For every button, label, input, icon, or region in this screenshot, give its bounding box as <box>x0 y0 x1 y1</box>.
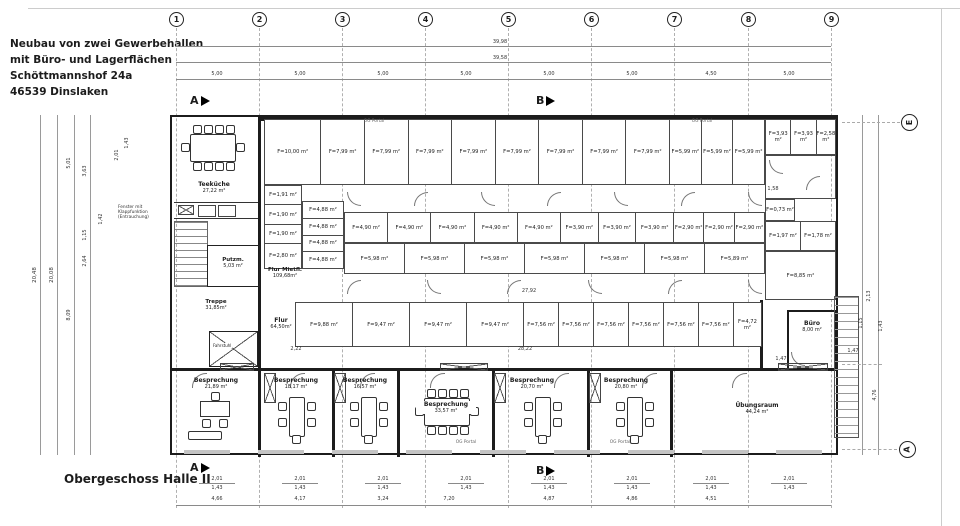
storage-unit: F=7,99 m² <box>451 119 496 185</box>
storage-row-lower: F=9,88 m²F=9,47 m²F=9,47 m²F=9,47 m²F=7,… <box>295 302 762 347</box>
chair-icon <box>438 389 447 398</box>
dim-label: 4,76 <box>872 382 878 408</box>
dim-label: 4,17 <box>289 496 311 502</box>
storage-row-mid-lower: F=5,98 m²F=5,98 m²F=5,98 m²F=5,98 m²F=5,… <box>344 243 765 274</box>
dim-label: 1,43 <box>878 313 884 339</box>
grid-bubble: 5 <box>501 12 516 27</box>
dimension-pair: 2,011,43 <box>771 476 807 491</box>
dimension-pair: 2,011,43 <box>448 476 484 491</box>
dim-label: 4,86 <box>621 496 643 502</box>
storage-unit: F=7,56 m² <box>558 302 594 347</box>
dim-line-bottom <box>176 505 831 506</box>
storage-unit: F=9,47 m² <box>409 302 467 347</box>
chair-icon <box>645 418 654 427</box>
table-icon <box>190 134 236 162</box>
chair-icon <box>616 418 625 427</box>
storage-unit: F=7,99 m² <box>320 119 365 185</box>
chair-icon <box>211 392 220 401</box>
chair-icon <box>215 125 224 134</box>
door-arc-icon <box>547 192 561 206</box>
row-bubble-e: E <box>901 114 918 131</box>
chair-icon <box>427 426 436 435</box>
chair-icon <box>278 402 287 411</box>
storage-unit: F=5,98 m² <box>464 243 525 274</box>
dim-label: 1,15 <box>858 310 864 336</box>
section-marker-a-top: A <box>190 94 210 107</box>
storage-unit: F=4,88 m² <box>302 235 344 253</box>
dim-tick-line <box>282 483 318 484</box>
wall <box>670 370 673 457</box>
storage-unit: F=7,56 m² <box>663 302 699 347</box>
door-arc-icon <box>347 192 361 206</box>
grid-bubble: 1 <box>169 12 184 27</box>
storage-unit: F=5,99 m² <box>732 119 765 185</box>
chair-icon <box>193 125 202 134</box>
room-label-treppe: Treppe 31,85m² <box>194 299 238 311</box>
dim-tick-line <box>693 483 729 484</box>
chair-icon <box>524 418 533 427</box>
storage-unit: F=2,80 m² <box>264 243 302 269</box>
dim-label: 5,01 <box>66 150 72 176</box>
room-label-flur: Flur 64,50m² <box>260 317 302 330</box>
storage-unit: F=9,47 m² <box>352 302 410 347</box>
chair-icon <box>524 402 533 411</box>
chair-icon <box>307 418 316 427</box>
storage-unit: F=1,78 m² <box>800 221 836 251</box>
dim-label: 28,22 <box>510 346 540 352</box>
sink-icon <box>178 205 194 215</box>
room-label-teekueche: Teeküche 27,22 m² <box>186 181 242 194</box>
row-axis-dash <box>842 122 900 123</box>
chair-icon <box>292 435 301 444</box>
grid-bubble: 2 <box>252 12 267 27</box>
storage-unit: F=0,73 m² <box>765 199 795 221</box>
conference-table-icon <box>184 125 240 169</box>
chair-icon <box>449 389 458 398</box>
chair-icon <box>226 162 235 171</box>
dimension-pair: 2,011,43 <box>693 476 729 491</box>
storage-unit: F=3,90 m² <box>560 212 599 243</box>
storage-unit: F=2,90 m² <box>734 212 765 243</box>
dim-line-top-bays <box>176 79 831 80</box>
meeting-table-icon <box>350 393 386 441</box>
grid-bubble: 4 <box>418 12 433 27</box>
counter-icon <box>218 205 236 217</box>
title-line: mit Büro- und Lagerflächen <box>10 52 220 68</box>
door-arc-icon <box>732 373 747 388</box>
desk-set-icon <box>186 393 242 441</box>
grid-bubble: 9 <box>824 12 839 27</box>
drawing-label: Obergeschoss Halle II <box>64 472 211 486</box>
room-label-besprechung-2: Besprechung 18,17 m² <box>266 377 326 390</box>
couch-icon <box>188 431 222 440</box>
dim-label: 4,87 <box>538 496 560 502</box>
title-line: Neubau von zwei Gewerbehallen <box>10 36 220 52</box>
grid-bubble: 6 <box>584 12 599 27</box>
og-portal-label: OG Portal <box>602 440 638 445</box>
storage-unit: F=5,99 m² <box>701 119 734 185</box>
chair-icon <box>204 125 213 134</box>
storage-unit: F=1,90 m² <box>264 204 302 224</box>
chair-icon <box>616 402 625 411</box>
dim-line-top-inner <box>176 62 831 63</box>
chair-icon <box>307 402 316 411</box>
chair-icon <box>193 162 202 171</box>
dim-tick-line <box>365 483 401 484</box>
wall <box>397 370 400 457</box>
chair-icon <box>645 402 654 411</box>
chair-icon <box>202 419 211 428</box>
dim-label: 3,63 <box>82 158 88 184</box>
storage-row-top: F=10,00 m²F=7,99 m²F=7,99 m²F=7,99 m²F=7… <box>264 119 765 185</box>
storage-row-corner: F=3,93 m²F=3,93 m²F=2,58 m² <box>765 119 836 155</box>
dimension-pair: 2,011,43 <box>282 476 318 491</box>
dim-bay-label: 5,00 <box>779 71 799 77</box>
storage-unit: F=5,98 m² <box>524 243 585 274</box>
storage-unit: F=7,56 m² <box>523 302 559 347</box>
dimension-pair: 2,011,43 <box>614 476 650 491</box>
dim-total-outer: 39,98 <box>478 39 522 45</box>
room-label-flur-mietfl: Flur Mietfl. 109,68m² <box>260 267 310 279</box>
dimension-pair: 2,011,43 <box>531 476 567 491</box>
storage-unit: F=3,93 m² <box>790 119 816 155</box>
storage-col-left-a: F=1,91 m²F=1,90 m²F=1,90 m²F=2,80 m² <box>264 185 302 269</box>
storage-unit: F=2,90 m² <box>673 212 704 243</box>
skylight-icon <box>778 363 828 371</box>
chair-icon <box>350 418 359 427</box>
row-bubble-a: A <box>899 441 916 458</box>
storage-unit: F=7,56 m² <box>628 302 664 347</box>
storage-unit: F=1,91 m² <box>264 185 302 205</box>
section-arrow-icon <box>546 96 555 106</box>
door-arc-icon <box>427 280 441 294</box>
dim-bay-label: 5,00 <box>373 71 393 77</box>
storage-row-right-pair: F=1,97 m²F=1,78 m² <box>765 221 836 251</box>
elevator-icon <box>209 331 258 367</box>
storage-unit: F=7,99 m² <box>364 119 409 185</box>
chair-icon <box>204 162 213 171</box>
dim-label: 27,92 <box>514 288 544 294</box>
row-axis-dash <box>842 449 897 450</box>
storage-unit: F=4,72 m² <box>733 302 762 347</box>
chair-icon <box>379 402 388 411</box>
dim-label: 4,51 <box>700 496 722 502</box>
storage-unit: F=4,88 m² <box>302 201 344 219</box>
stove-icon <box>198 205 216 217</box>
external-stairs-icon <box>834 296 859 438</box>
door-arc-icon <box>681 192 695 206</box>
dim-line-top-outer <box>176 46 831 47</box>
dim-bay-label: 5,00 <box>207 71 227 77</box>
storage-unit: F=3,90 m² <box>598 212 637 243</box>
dim-label: 3,24 <box>372 496 394 502</box>
storage-unit: F=5,99 m² <box>669 119 702 185</box>
room-label-besprechung-6: Besprechung 20,80 m² <box>596 377 656 390</box>
grid-bubble: 8 <box>741 12 756 27</box>
table-icon <box>535 397 551 437</box>
dim-label: 1,47 <box>840 348 866 354</box>
drawing-sheet: Neubau von zwei Gewerbehallenmit Büro- u… <box>0 0 960 526</box>
table-icon <box>361 397 377 437</box>
dim-line-left <box>40 115 41 455</box>
dim-label: 2,01 <box>114 142 120 168</box>
room-label-besprechung-4: Besprechung 33,57 m² <box>416 401 476 414</box>
dim-line-left <box>57 115 58 455</box>
dim-label: 20,48 <box>32 262 38 288</box>
table-icon <box>627 397 643 437</box>
meeting-table-icon <box>616 393 652 441</box>
dim-label: 2,64 <box>82 248 88 274</box>
door-arc-icon <box>668 280 682 294</box>
dim-bay-label: 5,00 <box>456 71 476 77</box>
storage-unit: F=8,85 m² <box>765 251 836 300</box>
page-edge-top <box>28 8 960 9</box>
storage-unit: F=9,47 m² <box>466 302 524 347</box>
storage-unit: F=5,98 m² <box>584 243 645 274</box>
dim-tick-line <box>531 483 567 484</box>
dim-total-inner: 39,58 <box>478 55 522 61</box>
door-arc-icon <box>748 280 762 294</box>
corridor-doors <box>347 274 762 300</box>
storage-unit: F=7,56 m² <box>698 302 734 347</box>
storage-unit: F=10,00 m² <box>264 119 321 185</box>
storage-col-left-b: F=4,88 m²F=4,88 m²F=4,88 m²F=4,88 m² <box>302 201 344 269</box>
storage-cell-small: F=0,73 m² <box>765 199 795 221</box>
storage-unit: F=4,90 m² <box>430 212 474 243</box>
room-label-besprechung-5: Besprechung 20,70 m² <box>502 377 562 390</box>
window-strip <box>184 450 832 454</box>
dim-label: 2,13 <box>866 283 872 309</box>
corridor-doors <box>347 186 762 212</box>
room-label-buero: Büro 8,00 m² <box>793 320 831 333</box>
storage-unit: F=4,90 m² <box>387 212 431 243</box>
dim-label: 4,66 <box>206 496 228 502</box>
grid-bubble: 7 <box>667 12 682 27</box>
room-label-besprechung-3: Besprechung 16,57 m² <box>335 377 395 390</box>
dim-label: 8,09 <box>66 302 72 328</box>
meeting-table-icon <box>524 393 560 441</box>
door-arc-icon <box>769 160 783 174</box>
wall <box>172 368 836 371</box>
storage-unit: F=4,90 m² <box>474 212 518 243</box>
title-line: 46539 Dinslaken <box>10 84 220 100</box>
table-icon <box>289 397 305 437</box>
elevator-label: Fahrstuhl <box>212 343 232 348</box>
door-arc-icon <box>748 192 762 206</box>
kitchen-counter <box>174 202 258 219</box>
vestibule <box>765 155 836 199</box>
storage-unit: F=5,98 m² <box>404 243 465 274</box>
stairs-icon <box>174 221 208 287</box>
dim-line-left <box>90 115 91 455</box>
dim-bay-label: 5,00 <box>290 71 310 77</box>
door-arc-icon <box>430 373 445 388</box>
dim-bay-label: 4,50 <box>701 71 721 77</box>
chair-icon <box>219 419 228 428</box>
section-marker-letter: B <box>536 94 544 107</box>
room-label-uebungsraum: Übungsraum 44,24 m² <box>712 402 802 415</box>
storage-unit: F=7,99 m² <box>495 119 540 185</box>
wall <box>258 117 261 457</box>
storage-unit: F=7,99 m² <box>538 119 583 185</box>
dim-label: 2,22 <box>281 346 311 352</box>
door-arc-icon <box>614 192 628 206</box>
door-arc-icon <box>347 280 361 294</box>
chair-icon <box>427 389 436 398</box>
floor-plan: Teeküche 27,22 m² Putzm. 5,03 m² Treppe … <box>170 115 838 455</box>
dim-label: 1,58 <box>758 186 788 192</box>
storage-unit: F=4,90 m² <box>517 212 561 243</box>
grid-bubble: 3 <box>335 12 350 27</box>
storage-unit: F=5,98 m² <box>644 243 705 274</box>
storage-unit: F=1,90 m² <box>264 224 302 244</box>
page-edge-right <box>941 8 942 526</box>
window-note: Fenster mit Klappfunktion (Entrauchung) <box>118 205 170 220</box>
chair-icon <box>553 418 562 427</box>
chair-icon <box>553 402 562 411</box>
dim-label: 1,47 <box>766 356 796 362</box>
chair-icon <box>350 402 359 411</box>
chair-icon <box>278 418 287 427</box>
skylight-icon <box>440 363 488 371</box>
dim-label: 1,42 <box>98 206 104 232</box>
storage-cell-large: F=8,85 m² <box>765 251 836 300</box>
storage-unit: F=7,99 m² <box>582 119 627 185</box>
dim-label: 1,43 <box>124 130 130 156</box>
chair-icon <box>236 143 245 152</box>
dim-tick-line <box>771 483 807 484</box>
chair-icon <box>215 162 224 171</box>
room-label-besprechung-1: Besprechung 21,89 m² <box>186 377 246 390</box>
dim-tick-line <box>614 483 650 484</box>
storage-unit: F=2,58 m² <box>816 119 836 155</box>
storage-unit: F=7,56 m² <box>593 302 629 347</box>
og-portal-label: OG Portal <box>448 440 484 445</box>
dim-bay-label: 5,00 <box>539 71 559 77</box>
dim-label: 7,20 <box>438 496 460 502</box>
chair-icon <box>438 426 447 435</box>
room-label-putzraum: Putzm. 5,03 m² <box>210 257 256 269</box>
dim-tick-line <box>448 483 484 484</box>
storage-unit: F=5,98 m² <box>344 243 405 274</box>
chair-icon <box>181 143 190 152</box>
chair-icon <box>460 426 469 435</box>
section-marker-b-top: B <box>536 94 555 107</box>
dimension-pair: 2,011,43 <box>365 476 401 491</box>
og-portal-label: OG Portal <box>684 119 720 124</box>
storage-unit: F=5,89 m² <box>704 243 765 274</box>
section-arrow-icon <box>201 96 210 106</box>
storage-unit: F=4,88 m² <box>302 218 344 236</box>
dim-bay-label: 5,00 <box>622 71 642 77</box>
section-marker-letter: A <box>190 94 199 107</box>
chair-icon <box>460 389 469 398</box>
storage-unit: F=7,99 m² <box>408 119 453 185</box>
storage-unit: F=2,90 m² <box>703 212 734 243</box>
row-axis-dash <box>842 364 882 365</box>
storage-unit: F=7,99 m² <box>625 119 670 185</box>
storage-unit: F=4,90 m² <box>344 212 388 243</box>
chair-icon <box>449 426 458 435</box>
section-arrow-icon <box>546 466 555 476</box>
storage-row-mid-upper: F=4,90 m²F=4,90 m²F=4,90 m²F=4,90 m²F=4,… <box>344 212 765 243</box>
skylight-icon <box>220 363 254 371</box>
desk-icon <box>200 401 230 417</box>
chair-icon <box>364 435 373 444</box>
storage-unit: F=1,97 m² <box>765 221 801 251</box>
section-arrow-icon <box>201 463 210 473</box>
dim-label: 1,15 <box>82 222 88 248</box>
door-arc-icon <box>806 176 820 190</box>
dim-line-left <box>74 115 75 455</box>
dim-line-right <box>878 115 879 455</box>
chair-icon <box>226 125 235 134</box>
title-line: Schöttmannshof 24a <box>10 68 220 84</box>
dim-label: 20,08 <box>49 262 55 288</box>
storage-unit: F=3,90 m² <box>635 212 674 243</box>
chair-icon <box>379 418 388 427</box>
storage-unit: F=9,88 m² <box>295 302 353 347</box>
dim-line-right <box>862 115 863 455</box>
storage-unit: F=3,93 m² <box>765 119 791 155</box>
meeting-table-icon <box>278 393 314 441</box>
door-arc-icon <box>588 280 602 294</box>
og-portal-label: OG Portal <box>356 119 392 124</box>
door-arc-icon <box>481 192 495 206</box>
chair-icon <box>538 435 547 444</box>
door-arc-icon <box>414 192 428 206</box>
